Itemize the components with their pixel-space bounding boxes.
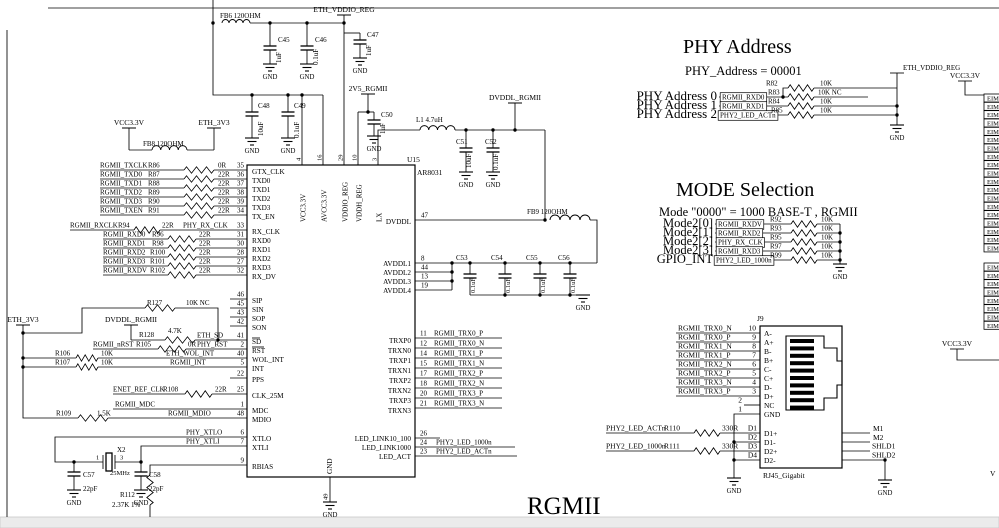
label-11: 11 [420,330,427,338]
resistor-symbol [791,230,817,236]
connector-part-number: RJ45_Gigabit [763,471,806,480]
region-chip-right: 47FB9 120OHM8441319C53C54C55C560.1uF0.1u… [415,208,597,456]
net-label-boxed-rgmii-rxd0: RGMII_RXD0 [722,94,765,102]
label-r112: R112 [120,491,135,499]
net-label-eim: EIM [987,154,999,161]
label-rgmii-trx2-n: RGMII_TRX2_N [434,380,484,388]
label-phy-rst: PHY_RST [197,341,228,349]
label-330r: 330R [722,442,738,451]
label-rgmii-txd1: RGMII_TXD1 [100,180,142,188]
label-0-1uf: 0.1uF [293,122,301,138]
box [247,165,415,477]
label-rgmii-trx2-n: RGMII_TRX2_N [678,360,732,369]
label-7: 7 [752,351,756,360]
label-3: 3 [120,455,123,462]
label-41: 41 [237,332,245,340]
resistor-symbol [791,221,817,227]
label-0-1uf: 0.1uF [492,154,500,170]
label-40: 40 [237,350,245,358]
junction-dot [366,110,369,113]
net-label-eim: EIM [987,306,999,313]
junction-dot [538,293,541,296]
schematic-canvas: FB6 120OHMGNDC451uFGNDC460.1uFETH_VDDIO_… [0,0,999,528]
label-7: 7 [241,438,245,446]
ground-label: GND [576,305,591,312]
label-r90: R90 [148,198,160,206]
label-trxp2: TRXP2 [389,377,411,385]
label-48: 48 [237,410,245,418]
box [790,398,814,402]
region-chip-left-rows: RGMII_TXCLKR860R35RGMII_TXD0R8722R36RGMI… [7,162,247,518]
label-22r: 22R [199,267,211,275]
resistor-symbol [168,272,196,278]
ground-label: GND [67,500,82,507]
label-rgmii-rxd0: RGMII_RXD0 [103,231,146,239]
label-10k: 10K [820,107,832,115]
label-14: 14 [420,350,428,358]
label-6: 6 [752,360,756,369]
ground-label: GND [245,148,260,155]
ground-label: GND [323,512,338,519]
label-l1-4-7uh: L1 4.7uH [416,116,443,124]
wire [590,220,597,263]
net-label-eim: EIM [987,162,999,169]
label-txd1: TXD1 [252,186,271,194]
label-vcc3-3v: VCC3.3V [950,71,981,80]
label-29: 29 [338,155,345,162]
connector-refdes: J9 [757,314,764,323]
label-c53: C53 [456,254,468,262]
label-vcc3-3v: VCC3.3V [300,194,308,222]
label-22r: 22R [199,258,211,266]
label-trxn0: TRXN0 [388,347,412,355]
label-8: 8 [421,255,425,263]
label-rgmii-trx3-p: RGMII_TRX3_P [434,390,483,398]
label-46: 46 [237,291,245,299]
net-label-eim: EIM [987,229,999,236]
resistor-symbol [791,257,817,263]
label-txd0: TXD0 [252,177,271,185]
ground-label: GND [353,68,368,75]
label-16: 16 [317,154,324,161]
label-10k: 10K [101,350,113,358]
resistor-symbol [788,94,814,100]
power-flag-dvddl-rgmii: DVDDL_RGMII [489,93,542,102]
label-r93: R93 [770,225,782,233]
label-vddio-reg: VDDIO_REG [342,182,350,222]
label-22r: 22R [218,198,230,206]
label-22r: 22R [199,231,211,239]
label-phy-xtli: PHY_XTLI [186,438,220,446]
chip-part-number: AR8031 [417,168,443,177]
label-rgmii-trx0-n: RGMII_TRX0_N [434,340,484,348]
net-label-eim: EIM [987,237,999,244]
wire [23,327,78,418]
label-3: 3 [752,387,756,396]
label-rgmii-rxd1: RGMII_RXD1 [103,240,146,248]
chip-refdes: U15 [407,155,420,164]
label-rgmii-trx2-p: RGMII_TRX2_P [434,370,483,378]
region-rj45-section: RGMII_TRX0_N10RGMII_TRX0_P9RGMII_TRX1_N8… [606,324,896,498]
label-10k-nc: 10K NC [818,89,842,97]
power-flag-eth-3v3: ETH_3V3 [198,118,229,127]
power-flag-vcc3-3v: VCC3.3V [114,118,145,127]
label-r82: R82 [766,80,778,88]
label-txd2: TXD2 [252,195,271,203]
resistor-symbol [791,248,817,254]
net-label-boxed-rgmii-rxd3: RGMII_RXD3 [718,248,761,256]
label-r108: R108 [163,386,179,394]
label-rgmii-trx1-p: RGMII_TRX1_P [434,350,483,358]
label-m1: M1 [873,424,884,433]
label-rx-dv: RX_DV [252,273,277,281]
label-phy2-led-1000n: PHY2_LED_1000n [436,439,492,447]
label-r107: R107 [55,359,71,367]
label-rgmii-trx1-p: RGMII_TRX1_P [678,351,731,360]
label-36: 36 [237,171,245,179]
junction-dot [838,231,841,234]
label-4: 4 [752,378,756,387]
resistor-symbol [184,167,214,173]
label-led-link10-100: LED_LINK10_100 [355,435,412,443]
label-1uf: 1uF [365,45,373,56]
label-1uf: 1uF [275,52,283,63]
label-rgmii-trx2-p: RGMII_TRX2_P [678,369,731,378]
resistor-symbol [185,391,212,397]
resistor-symbol [168,236,196,242]
label-22r: 22R [215,386,227,394]
label-b+: B+ [764,356,773,365]
label-31: 31 [237,231,245,239]
label-son: SON [252,324,267,332]
resistor-symbol [184,176,214,182]
label-rgmii-rxd3: RGMII_RXD3 [103,258,146,266]
label-1-5k: 1.5K [97,410,111,418]
label-clk-25m: CLK_25M [252,392,284,400]
label-r83: R83 [768,89,780,97]
resistor-symbol [168,245,196,251]
power-flag-dvddl-rgmii: DVDDL_RGMII [105,315,158,324]
label-rgmii-trx0-p: RGMII_TRX0_P [434,330,483,338]
label-rgmii-rxclk: RGMII_RXCLK [70,222,118,230]
label-rst: RST [252,347,266,355]
label-tx-en: TX_EN [252,213,276,221]
label-1uf: 1uF [379,123,387,134]
label-led-act: LED_ACT [379,453,412,461]
label-sip: SIP [252,297,262,305]
ground-label: GND [890,135,905,142]
label-enet-ref-clk: ENET_REF_CLK [113,386,165,394]
label-sd: SD [252,338,261,346]
box [0,517,999,528]
label-10k: 10K [821,243,833,251]
label-led-link1000: LED_LINK1000 [362,444,412,452]
label-vcc3-3v: VCC3.3V [942,339,973,348]
label-10k: 10K [821,234,833,242]
box [790,354,814,358]
label-42: 42 [237,318,245,326]
net-label-eim: EIM [987,265,999,272]
label-rxd1: RXD1 [252,246,271,254]
label-49: 49 [323,494,330,501]
net-label-eim: EIM [987,245,999,252]
label-rgmii-trx3-n: RGMII_TRX3_N [434,400,484,408]
box [106,453,112,471]
resistor-symbol [168,263,196,269]
label-c: C- [764,365,772,374]
label-10uf: 10uF [465,154,473,169]
ground-label: GND [833,274,848,281]
region-chip: VCC3.3VAVCC3.3VVDDIO_REGVDDH_REGLX416291… [247,154,415,519]
label-vddh-reg: VDDH_REG [356,184,364,222]
label-c45: C45 [278,36,290,44]
label-gpio-int: GPIO_INT [657,252,714,266]
label-rgmii-mdio: RGMII_MDIO [168,410,211,418]
label-rgmii-nrst: RGMII_nRST [93,341,134,349]
label-r111: R111 [664,442,680,451]
label-1: 1 [96,455,99,462]
label-a: A- [764,329,772,338]
label-r105: R105 [136,341,152,349]
label-1: 1 [738,405,742,414]
label-c48: C48 [258,102,270,110]
wire [150,465,247,475]
label-33: 33 [237,222,245,230]
ground-label: GND [300,74,315,81]
label-0-1uf: 0.1uF [570,278,577,293]
label-shld2: SHLD2 [872,451,896,460]
label-39: 39 [237,198,245,206]
label-rgmii-trx3-n: RGMII_TRX3_N [678,378,732,387]
label-r128: R128 [139,331,155,339]
label-d+: D+ [764,392,774,401]
label-43: 43 [237,309,245,317]
label-20: 20 [420,390,428,398]
label-22r: 22R [218,189,230,197]
box [790,369,814,373]
ground-label: GND [727,488,742,495]
label-fb8-120ohm: FB8 120OHM [143,140,184,148]
label-phy-xtlo: PHY_XTLO [186,429,222,437]
label-9: 9 [752,333,756,342]
label-1: 1 [241,401,245,409]
label-22r: 22R [199,240,211,248]
label-rxd2: RXD2 [252,255,271,263]
net-label-eim: EIM [987,195,999,202]
label-d1: D1- [764,438,776,447]
label-32: 32 [237,267,245,275]
label-rgmii-txen: RGMII_TXEN [100,207,143,215]
label-rgmii-trx1-n: RGMII_TRX1_N [678,342,732,351]
net-label-eim: EIM [987,212,999,219]
resistor-symbol [788,85,814,91]
resistor-symbol [694,430,720,436]
label-rgmii-rxd2: RGMII_RXD2 [103,249,146,257]
phy-address-value: PHY_Address = 00001 [685,64,802,78]
label-r85: R85 [771,107,783,115]
label-r96: R96 [152,231,164,239]
label-d4: D4 [748,451,757,460]
label-3: 3 [372,158,379,161]
net-label-eim: EIM [987,145,999,152]
label-c50: C50 [381,111,393,119]
region-power-top: FB6 120OHMGNDC451uFGNDC460.1uFETH_VDDIO_… [114,0,545,220]
label-rbias: RBIAS [252,463,273,471]
label-phy2-led-actn: PHY2_LED_ACTn [606,424,666,433]
label-d2: D2- [764,456,776,465]
label-r100: R100 [150,249,166,257]
net-label-eim: EIM [987,137,999,144]
label-47: 47 [421,212,429,220]
label-44: 44 [421,264,429,272]
label-4: 4 [296,157,303,161]
power-flag-2v5-rgmii: 2V5_RGMII [349,84,388,93]
label-c57: C57 [83,471,95,479]
resistor-symbol [791,239,817,245]
label-10uf: 10uF [257,122,265,137]
label-rgmii-int: RGMII_INT [170,359,206,367]
net-label-eim: EIM [987,170,999,177]
resistor-symbol [76,355,98,361]
label-c55: C55 [526,254,538,262]
ground-label: GND [281,148,296,155]
label-c+: C+ [764,374,773,383]
label-rgmii-txd2: RGMII_TXD2 [100,189,142,197]
label-avddl2: AVDDL2 [383,269,411,277]
label-45: 45 [237,300,245,308]
label-2: 2 [738,396,742,405]
label-22r: 22R [218,207,230,215]
junction-dot [838,249,841,252]
label-eth-wol-int: ETH_WOL_INT [166,350,215,358]
label-gnd: GND [764,410,781,419]
label-8: 8 [752,342,756,351]
label-trxn2: TRXN2 [388,387,412,395]
label-0-1uf: 0.1uF [540,278,547,293]
label-10k: 10K [821,225,833,233]
label-d: D- [764,383,772,392]
label-c58: C58 [149,471,161,479]
label-34: 34 [237,207,245,215]
schematic-page: FB6 120OHMGNDC451uFGNDC460.1uFETH_VDDIO_… [0,0,999,528]
label-37: 37 [237,180,245,188]
region-right-edge: VCC3.3VEIMEIMEIMEIMEIMEIMEIMEIMEIMEIMEIM… [942,71,999,478]
label-r97: R97 [770,243,782,251]
label-0-1uf: 0.1uF [505,278,512,293]
label-rgmii-trx1-n: RGMII_TRX1_N [434,360,484,368]
region-mode-section: Mode2[0]RGMII_RXDVR9210KMode2[1]RGMII_RX… [657,216,848,282]
label-330r: 330R [722,424,738,433]
box [790,391,814,395]
label-c49: C49 [294,102,306,110]
label-17: 17 [420,370,428,378]
label-10k: 10K [820,98,832,106]
label-5: 5 [241,359,245,367]
label-0r: 0R [218,162,227,170]
label-wol-int: WOL_INT [252,356,285,364]
label-0r: 0R [188,341,197,349]
label-trxn3: TRXN3 [388,407,412,415]
box [790,406,814,410]
label-trxn1: TRXN1 [388,367,412,375]
resistor-symbol [788,103,814,109]
net-label-eim: EIM [987,273,999,280]
net-label-eim: EIM [987,187,999,194]
label-0-1uf: 0.1uF [312,49,320,65]
label-r109: R109 [56,410,72,418]
label-b: B- [764,347,772,356]
label-rgmii-trx0-p: RGMII_TRX0_P [678,333,731,342]
label-0-1uf: 0.1uF [470,278,477,293]
label-10k-nc: 10K NC [186,299,210,307]
phy-address-title: PHY Address [683,36,792,58]
label-15: 15 [420,360,428,368]
label-rgmii-rxdv: RGMII_RXDV [103,267,147,275]
label-rgmii-trx3-p: RGMII_TRX3_P [678,387,731,396]
label-4-7k: 4.7K [168,327,182,335]
net-label-eim: EIM [987,120,999,127]
label-30: 30 [237,240,245,248]
label-13: 13 [421,273,429,281]
label-6: 6 [241,429,245,437]
label-fb9-120ohm: FB9 120OHM [527,208,568,216]
label-23: 23 [420,448,428,456]
label-d3: D3 [748,442,757,451]
label-rgmii-txd0: RGMII_TXD0 [100,171,142,179]
inductor-symbol [222,20,250,24]
label-d1: D1 [748,424,757,433]
label-xtlo: XTLO [252,435,271,443]
label-22r: 22R [199,249,211,257]
label-sop: SOP [252,315,265,323]
resistor-symbol [694,448,720,454]
label-10: 10 [352,155,359,162]
junction-dot [568,293,571,296]
label-gtx-clk: GTX_CLK [252,168,286,176]
wire [957,349,999,360]
label-22pf: 22pF [83,485,98,493]
label-sin: SIN [252,306,264,314]
label-24: 24 [420,439,428,447]
label-phy2-led-1000n: PHY2_LED_1000n [606,442,666,451]
label-r91: R91 [148,207,160,215]
junction-dot [450,279,453,282]
label-9: 9 [241,457,245,465]
label-avddl1: AVDDL1 [383,260,411,268]
label-r84: R84 [768,98,780,106]
label-d2: D2 [748,433,757,442]
label-pps: PPS [252,376,264,384]
label-phy2-led-actn: PHY2_LED_ACTn [436,448,492,456]
power-flag-eth-vddio-reg: ETH_VDDIO_REG [313,5,375,14]
label-25mhz: 25MHz [110,470,130,477]
label-nc: NC [764,401,774,410]
label-r106: R106 [55,350,71,358]
net-label-eim: EIM [987,204,999,211]
schematic-generated: FB6 120OHMGNDC451uFGNDC460.1uFETH_VDDIO_… [0,0,999,528]
junction-dot [450,261,453,264]
ground-label: GND [486,182,501,189]
label-c51: C51 [456,138,468,146]
label-d2+: D2+ [764,447,777,456]
box [790,376,814,380]
label-rgmii-txclk: RGMII_TXCLK [100,162,147,170]
label-c54: C54 [491,254,503,262]
resistor-symbol [788,112,814,118]
label-12: 12 [420,340,428,348]
schematic-caption: RGMII [527,493,601,520]
label-22: 22 [237,370,245,378]
